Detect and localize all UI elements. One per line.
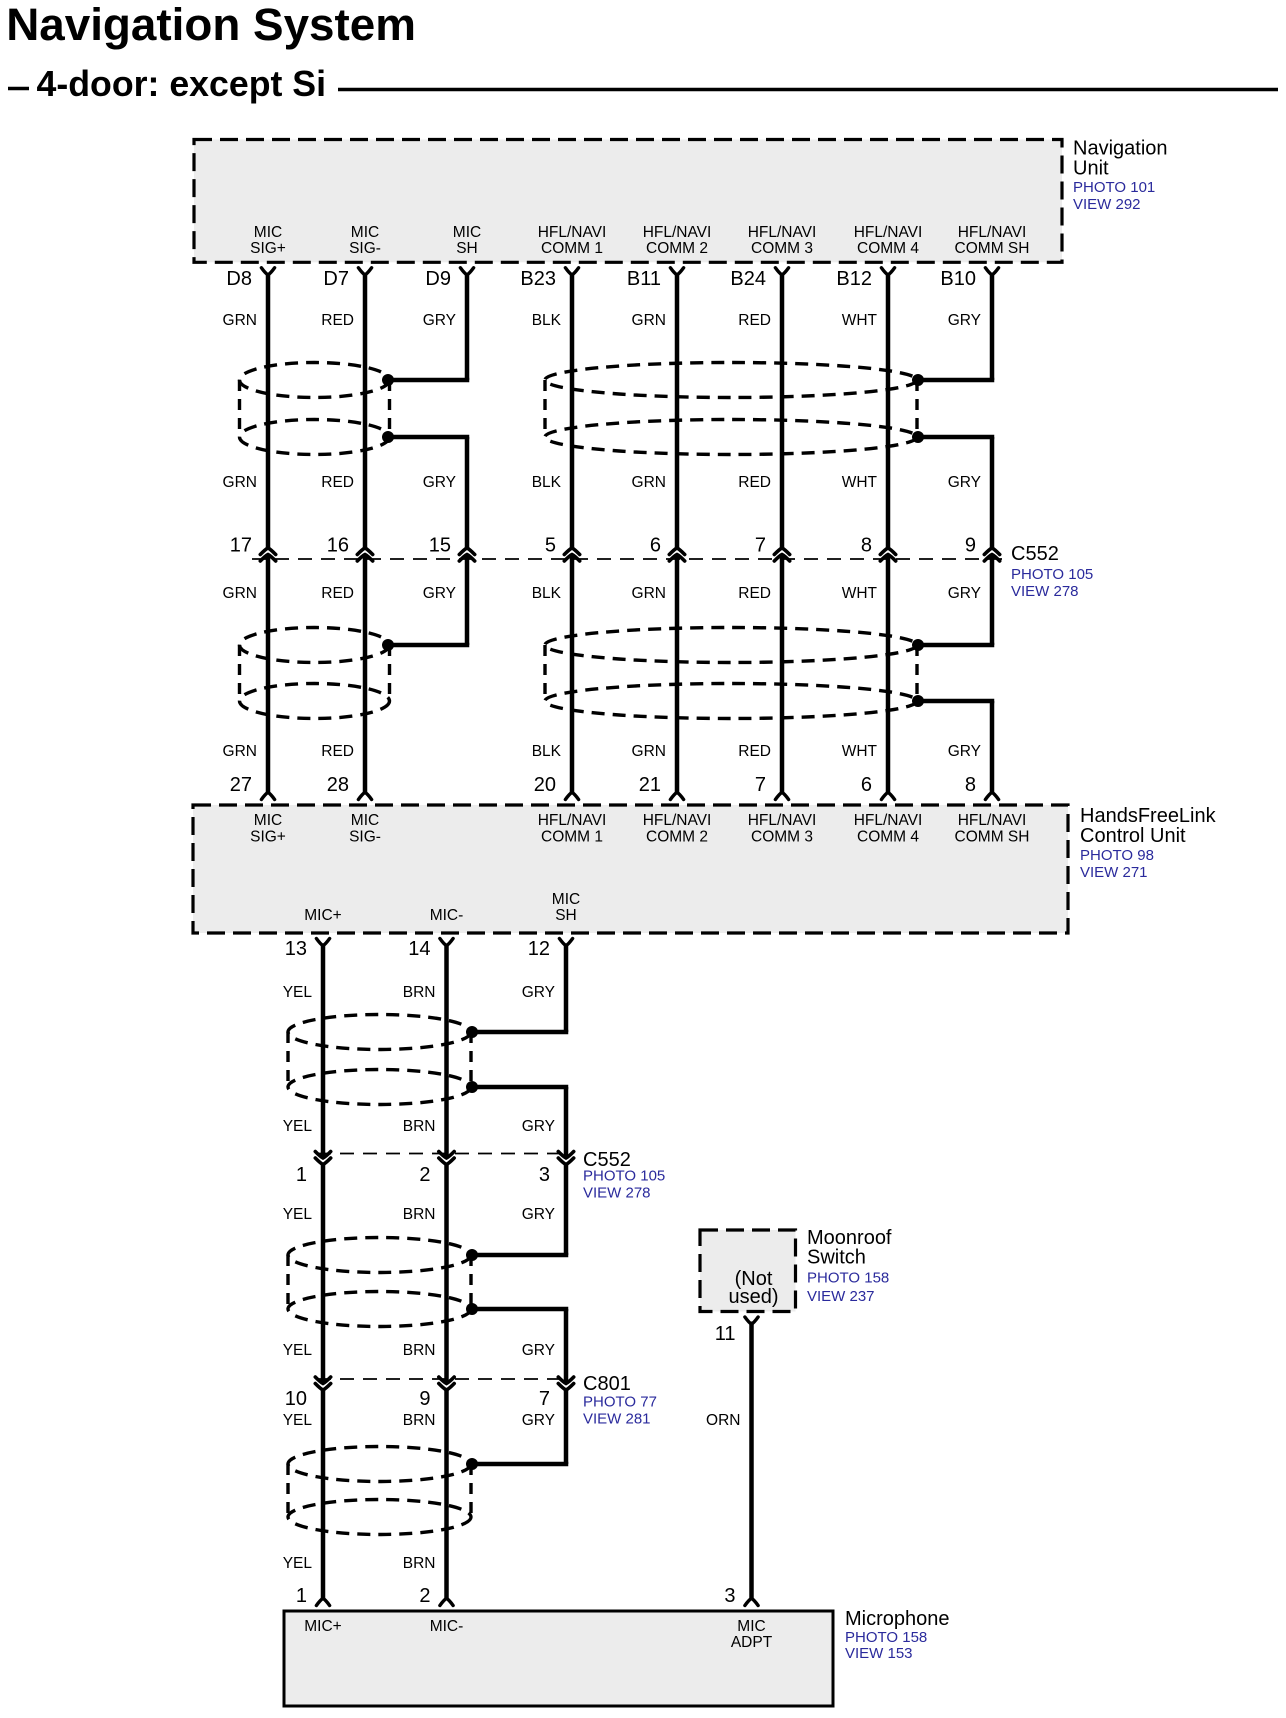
svg-text:HFL/NAVI: HFL/NAVI: [643, 224, 712, 241]
svg-text:PHOTO 101: PHOTO 101: [1073, 179, 1155, 196]
svg-text:GRY: GRY: [522, 1412, 555, 1429]
svg-text:BRN: BRN: [403, 1342, 436, 1359]
svg-text:Navigation System: Navigation System: [6, 0, 416, 50]
svg-text:MIC: MIC: [453, 224, 481, 241]
svg-text:WHT: WHT: [842, 312, 878, 329]
svg-text:GRY: GRY: [423, 312, 456, 329]
svg-text:HFL/NAVI: HFL/NAVI: [958, 224, 1027, 241]
svg-text:GRY: GRY: [423, 474, 456, 491]
svg-text:D7: D7: [323, 268, 349, 290]
svg-text:B24: B24: [730, 268, 766, 290]
svg-text:16: 16: [327, 535, 349, 557]
svg-text:2: 2: [419, 1164, 430, 1186]
svg-text:BRN: BRN: [403, 1555, 436, 1572]
svg-text:SIG+: SIG+: [250, 240, 286, 257]
svg-text:MIC: MIC: [254, 812, 282, 829]
svg-text:COMM 3: COMM 3: [751, 240, 813, 257]
svg-text:GRN: GRN: [223, 312, 257, 329]
svg-text:WHT: WHT: [842, 743, 878, 760]
svg-text:YEL: YEL: [283, 1118, 313, 1135]
svg-text:GRY: GRY: [522, 1118, 555, 1135]
svg-text:MIC-: MIC-: [430, 1618, 464, 1635]
svg-text:VIEW 292: VIEW 292: [1073, 196, 1141, 213]
svg-text:C552: C552: [1011, 543, 1059, 565]
svg-text:GRN: GRN: [632, 743, 666, 760]
svg-text:GRY: GRY: [522, 1342, 555, 1359]
svg-text:PHOTO 158: PHOTO 158: [845, 1629, 927, 1646]
svg-text:27: 27: [230, 774, 252, 796]
svg-text:1: 1: [296, 1585, 307, 1607]
svg-text:ORN: ORN: [706, 1412, 740, 1429]
svg-text:3: 3: [539, 1164, 550, 1186]
svg-text:HFL/NAVI: HFL/NAVI: [748, 812, 817, 829]
svg-text:Switch: Switch: [807, 1247, 866, 1269]
svg-text:WHT: WHT: [842, 474, 878, 491]
svg-text:GRY: GRY: [522, 1206, 555, 1223]
svg-text:RED: RED: [738, 585, 771, 602]
svg-text:PHOTO 98: PHOTO 98: [1080, 847, 1154, 864]
svg-text:PHOTO 105: PHOTO 105: [583, 1168, 665, 1185]
svg-text:GRY: GRY: [948, 585, 981, 602]
svg-text:COMM 1: COMM 1: [541, 240, 603, 257]
svg-text:15: 15: [429, 535, 451, 557]
svg-text:HFL/NAVI: HFL/NAVI: [854, 224, 923, 241]
svg-text:VIEW 271: VIEW 271: [1080, 864, 1148, 881]
svg-text:17: 17: [230, 535, 252, 557]
svg-text:GRN: GRN: [223, 743, 257, 760]
svg-text:HFL/NAVI: HFL/NAVI: [538, 812, 607, 829]
svg-text:HFL/NAVI: HFL/NAVI: [538, 224, 607, 241]
svg-text:28: 28: [327, 774, 349, 796]
svg-text:BLK: BLK: [532, 585, 562, 602]
svg-text:7: 7: [755, 774, 766, 796]
svg-text:PHOTO 77: PHOTO 77: [583, 1394, 657, 1411]
svg-text:3: 3: [724, 1585, 735, 1607]
svg-text:9: 9: [965, 535, 976, 557]
svg-text:7: 7: [755, 535, 766, 557]
svg-text:HFL/NAVI: HFL/NAVI: [958, 812, 1027, 829]
svg-text:5: 5: [545, 535, 556, 557]
svg-text:BRN: BRN: [403, 1412, 436, 1429]
svg-text:SIG-: SIG-: [349, 240, 381, 257]
svg-text:COMM 4: COMM 4: [857, 240, 919, 257]
svg-text:Microphone: Microphone: [845, 1608, 950, 1630]
svg-text:1: 1: [296, 1164, 307, 1186]
svg-text:VIEW 153: VIEW 153: [845, 1645, 913, 1662]
svg-text:13: 13: [285, 938, 307, 960]
svg-text:YEL: YEL: [283, 1206, 313, 1223]
svg-text:MIC: MIC: [552, 891, 580, 908]
svg-text:GRY: GRY: [948, 743, 981, 760]
svg-text:GRY: GRY: [948, 474, 981, 491]
svg-text:21: 21: [639, 774, 661, 796]
svg-text:BLK: BLK: [532, 743, 562, 760]
svg-text:B10: B10: [940, 268, 976, 290]
svg-text:Unit: Unit: [1073, 158, 1109, 180]
svg-text:RED: RED: [738, 312, 771, 329]
svg-text:MIC+: MIC+: [304, 1618, 341, 1635]
svg-text:BLK: BLK: [532, 474, 562, 491]
svg-text:RED: RED: [321, 312, 354, 329]
svg-text:7: 7: [539, 1388, 550, 1410]
svg-text:MIC: MIC: [351, 224, 379, 241]
svg-text:GRN: GRN: [223, 474, 257, 491]
svg-text:GRN: GRN: [632, 474, 666, 491]
svg-text:SH: SH: [456, 240, 478, 257]
svg-text:6: 6: [861, 774, 872, 796]
svg-text:12: 12: [528, 938, 550, 960]
svg-text:14: 14: [408, 938, 430, 960]
svg-text:D8: D8: [226, 268, 252, 290]
svg-text:VIEW 281: VIEW 281: [583, 1411, 651, 1428]
svg-text:MIC+: MIC+: [304, 907, 341, 924]
svg-text:BRN: BRN: [403, 1118, 436, 1135]
svg-text:RED: RED: [321, 743, 354, 760]
svg-text:6: 6: [650, 535, 661, 557]
svg-text:COMM 1: COMM 1: [541, 829, 603, 846]
svg-text:COMM 3: COMM 3: [751, 829, 813, 846]
svg-text:COMM SH: COMM SH: [955, 240, 1030, 257]
svg-text:PHOTO 105: PHOTO 105: [1011, 566, 1093, 583]
svg-text:9: 9: [419, 1388, 430, 1410]
svg-text:Navigation: Navigation: [1073, 138, 1168, 160]
svg-text:MIC-: MIC-: [430, 907, 464, 924]
svg-text:4-door: except Si: 4-door: except Si: [37, 64, 327, 104]
svg-text:SIG+: SIG+: [250, 829, 286, 846]
svg-text:used): used): [728, 1286, 778, 1308]
svg-text:HFL/NAVI: HFL/NAVI: [854, 812, 923, 829]
svg-text:VIEW 278: VIEW 278: [583, 1185, 651, 1202]
svg-text:GRY: GRY: [423, 585, 456, 602]
svg-text:YEL: YEL: [283, 1412, 313, 1429]
svg-text:PHOTO 158: PHOTO 158: [807, 1270, 889, 1287]
svg-text:2: 2: [419, 1585, 430, 1607]
svg-text:RED: RED: [321, 474, 354, 491]
svg-text:VIEW 278: VIEW 278: [1011, 583, 1079, 600]
svg-text:B12: B12: [836, 268, 872, 290]
svg-text:MIC: MIC: [351, 812, 379, 829]
svg-text:11: 11: [715, 1323, 736, 1345]
svg-text:HFL/NAVI: HFL/NAVI: [748, 224, 817, 241]
svg-text:RED: RED: [321, 585, 354, 602]
svg-text:VIEW 237: VIEW 237: [807, 1288, 875, 1305]
svg-text:MIC: MIC: [737, 1618, 765, 1635]
svg-text:Control Unit: Control Unit: [1080, 825, 1186, 847]
svg-text:8: 8: [965, 774, 976, 796]
svg-text:SIG-: SIG-: [349, 829, 381, 846]
svg-text:COMM 2: COMM 2: [646, 240, 708, 257]
svg-text:GRN: GRN: [632, 312, 666, 329]
svg-text:BRN: BRN: [403, 1206, 436, 1223]
svg-text:D9: D9: [425, 268, 451, 290]
svg-text:GRN: GRN: [223, 585, 257, 602]
svg-text:WHT: WHT: [842, 585, 878, 602]
svg-text:BLK: BLK: [532, 312, 562, 329]
svg-text:YEL: YEL: [283, 1555, 313, 1572]
svg-text:C801: C801: [583, 1373, 631, 1395]
svg-text:BRN: BRN: [403, 984, 436, 1001]
svg-text:SH: SH: [555, 907, 577, 924]
svg-text:GRY: GRY: [522, 984, 555, 1001]
svg-text:B11: B11: [627, 268, 661, 290]
svg-text:MIC: MIC: [254, 224, 282, 241]
svg-text:GRN: GRN: [632, 585, 666, 602]
svg-text:10: 10: [285, 1388, 307, 1410]
svg-text:COMM 2: COMM 2: [646, 829, 708, 846]
svg-text:20: 20: [534, 774, 556, 796]
svg-text:COMM 4: COMM 4: [857, 829, 919, 846]
svg-text:RED: RED: [738, 474, 771, 491]
svg-text:GRY: GRY: [948, 312, 981, 329]
svg-text:B23: B23: [520, 268, 556, 290]
svg-text:8: 8: [861, 535, 872, 557]
svg-text:ADPT: ADPT: [731, 1634, 773, 1651]
svg-text:YEL: YEL: [283, 1342, 313, 1359]
svg-text:HFL/NAVI: HFL/NAVI: [643, 812, 712, 829]
svg-text:YEL: YEL: [283, 984, 313, 1001]
svg-text:RED: RED: [738, 743, 771, 760]
svg-text:HandsFreeLink: HandsFreeLink: [1080, 805, 1217, 827]
svg-text:COMM SH: COMM SH: [955, 829, 1030, 846]
